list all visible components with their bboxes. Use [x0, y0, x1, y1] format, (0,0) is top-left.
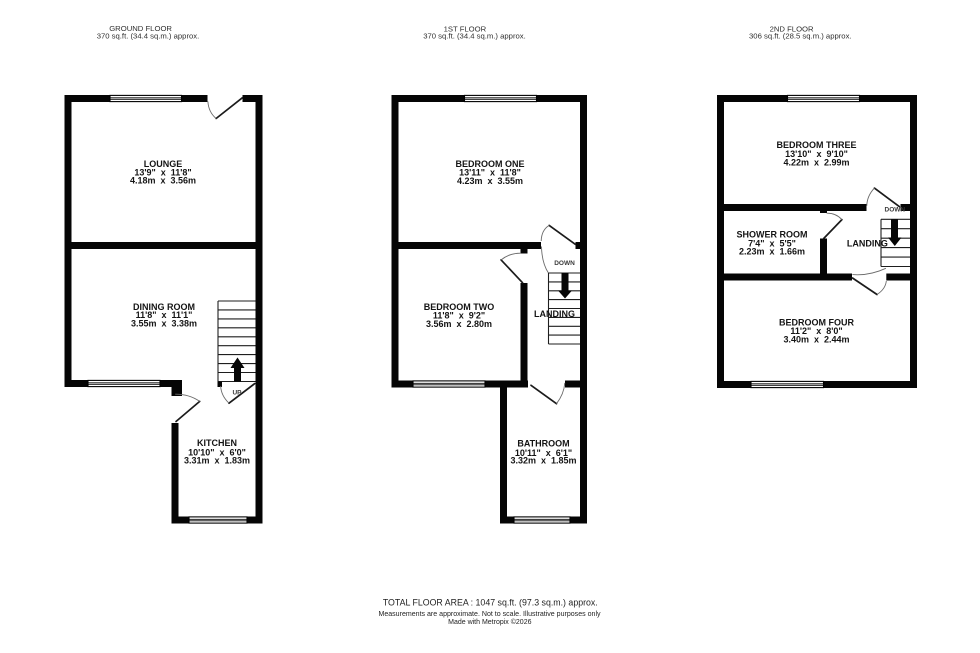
svg-text:DOWN: DOWN	[554, 260, 575, 267]
svg-text:Measurements are approximate.: Measurements are approximate. Not to sca…	[378, 611, 601, 618]
svg-text:DOWN: DOWN	[885, 206, 906, 213]
svg-text:4.18m x 3.56m: 4.18m x 3.56m	[130, 176, 196, 186]
svg-text:LANDING: LANDING	[847, 238, 888, 248]
svg-text:370 sq.ft. (34.4 sq.m.) approx: 370 sq.ft. (34.4 sq.m.) approx.	[423, 31, 526, 40]
svg-text:3.32m x 1.85m: 3.32m x 1.85m	[510, 456, 576, 466]
svg-text:3.31m x 1.83m: 3.31m x 1.83m	[184, 455, 250, 465]
svg-text:UP: UP	[232, 390, 242, 397]
svg-text:LANDING: LANDING	[534, 309, 575, 319]
svg-text:370 sq.ft. (34.4 sq.m.) approx: 370 sq.ft. (34.4 sq.m.) approx.	[97, 31, 200, 40]
svg-text:306 sq.ft. (28.5 sq.m.) approx: 306 sq.ft. (28.5 sq.m.) approx.	[749, 31, 852, 40]
svg-text:TOTAL FLOOR AREA : 1047 sq.ft.: TOTAL FLOOR AREA : 1047 sq.ft. (97.3 sq.…	[383, 598, 598, 608]
svg-text:3.56m x 2.80m: 3.56m x 2.80m	[426, 319, 492, 329]
svg-text:4.22m x 2.99m: 4.22m x 2.99m	[783, 158, 849, 168]
svg-text:3.40m x 2.44m: 3.40m x 2.44m	[783, 335, 849, 345]
svg-text:Made with Metropix ©2026: Made with Metropix ©2026	[448, 618, 531, 626]
svg-text:3.55m x 3.38m: 3.55m x 3.38m	[131, 318, 197, 328]
svg-text:4.23m x 3.55m: 4.23m x 3.55m	[457, 176, 523, 186]
svg-text:2.23m x 1.66m: 2.23m x 1.66m	[739, 247, 805, 257]
